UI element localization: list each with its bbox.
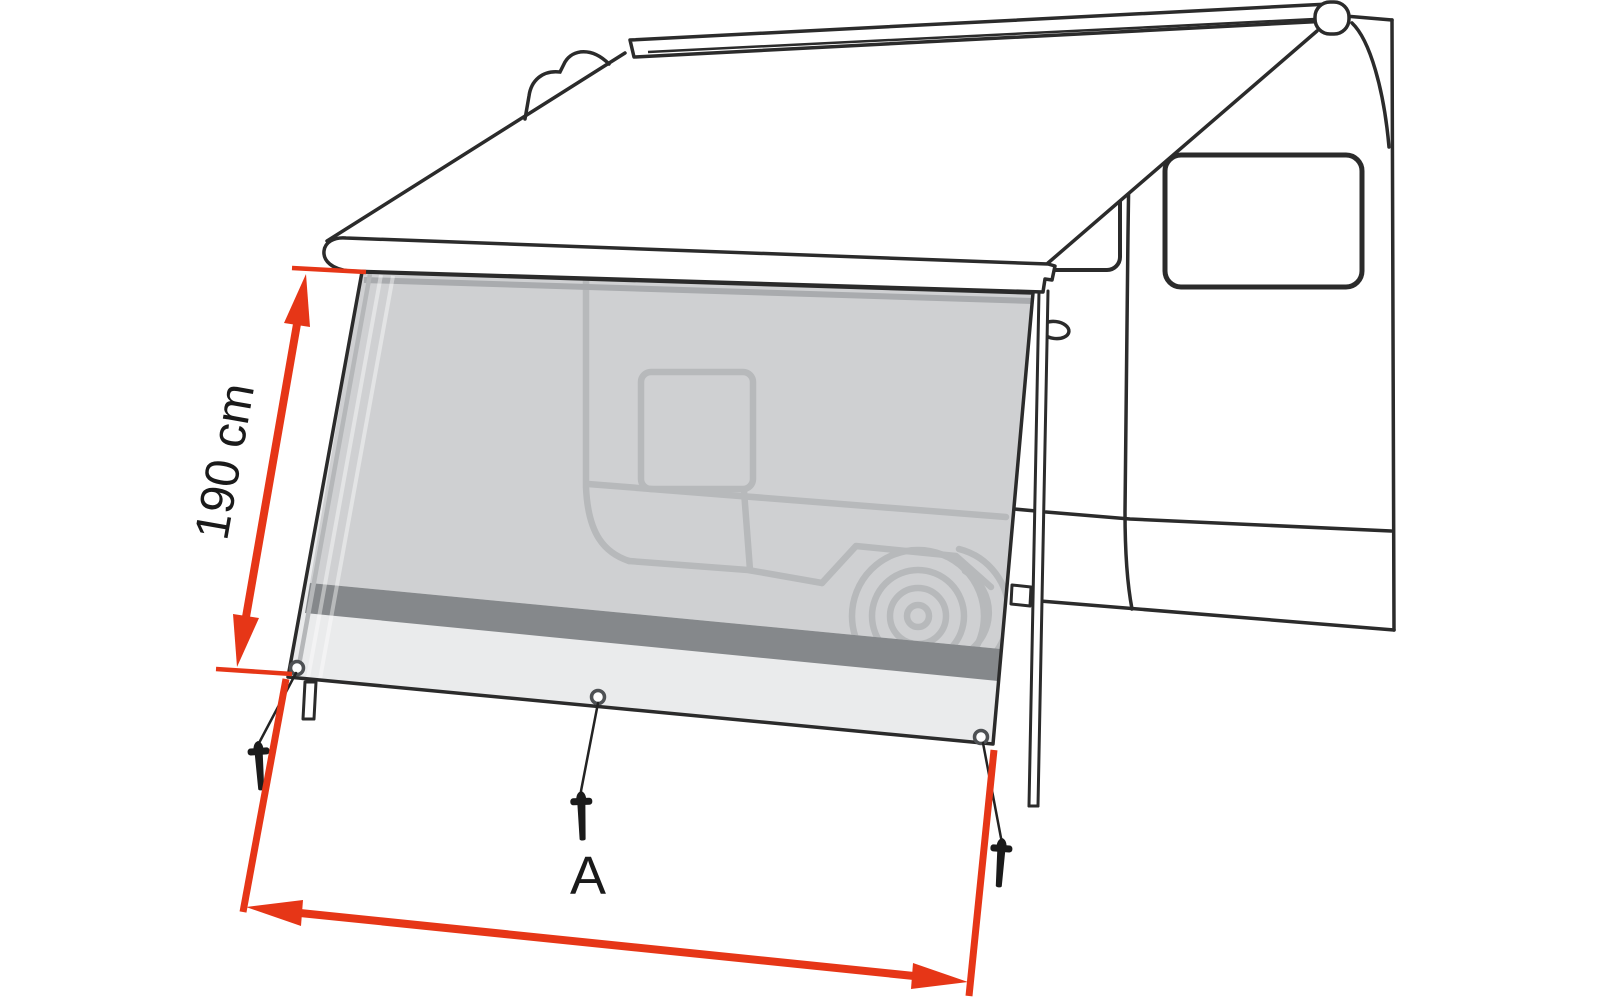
support-leg-left-foot — [303, 682, 316, 719]
diagram-stage: 190 cm A — [0, 0, 1600, 1000]
peg-center — [570, 791, 594, 841]
van-roof-line — [1345, 16, 1392, 20]
width-dim-shaft — [300, 913, 914, 976]
leg-bracket — [1011, 585, 1031, 606]
grommet-center — [592, 691, 605, 704]
height-arrowhead-down — [233, 614, 259, 667]
awning-roller-end-cap — [1315, 2, 1349, 34]
van-bottom-edge — [1040, 601, 1394, 630]
grommet-right — [975, 731, 988, 744]
panel-mesh — [310, 272, 1033, 649]
width-arrowhead-right — [911, 963, 968, 989]
peg-right — [988, 837, 1013, 888]
cord-center — [581, 703, 598, 791]
height-tick-bottom — [216, 669, 292, 674]
awning-dimension-diagram: 190 cm A — [0, 0, 1600, 1000]
van-trim-line — [1046, 512, 1391, 531]
width-arrowhead-left — [246, 900, 303, 926]
van-trim-line-sliver — [1014, 509, 1036, 511]
height-arrowhead-up — [284, 274, 310, 327]
sun-blocker-panel — [288, 272, 1033, 744]
height-dim-shaft — [246, 324, 297, 617]
van-door-line — [1125, 163, 1132, 609]
van-cab-curve — [1352, 23, 1389, 147]
van-right-edge — [1392, 20, 1394, 630]
width-ext-line-left — [243, 679, 286, 912]
height-dimension-label: 190 cm — [185, 379, 265, 543]
van-side-window — [1165, 155, 1362, 287]
width-dimension-label: A — [570, 846, 606, 906]
width-ext-line-right — [969, 750, 994, 996]
